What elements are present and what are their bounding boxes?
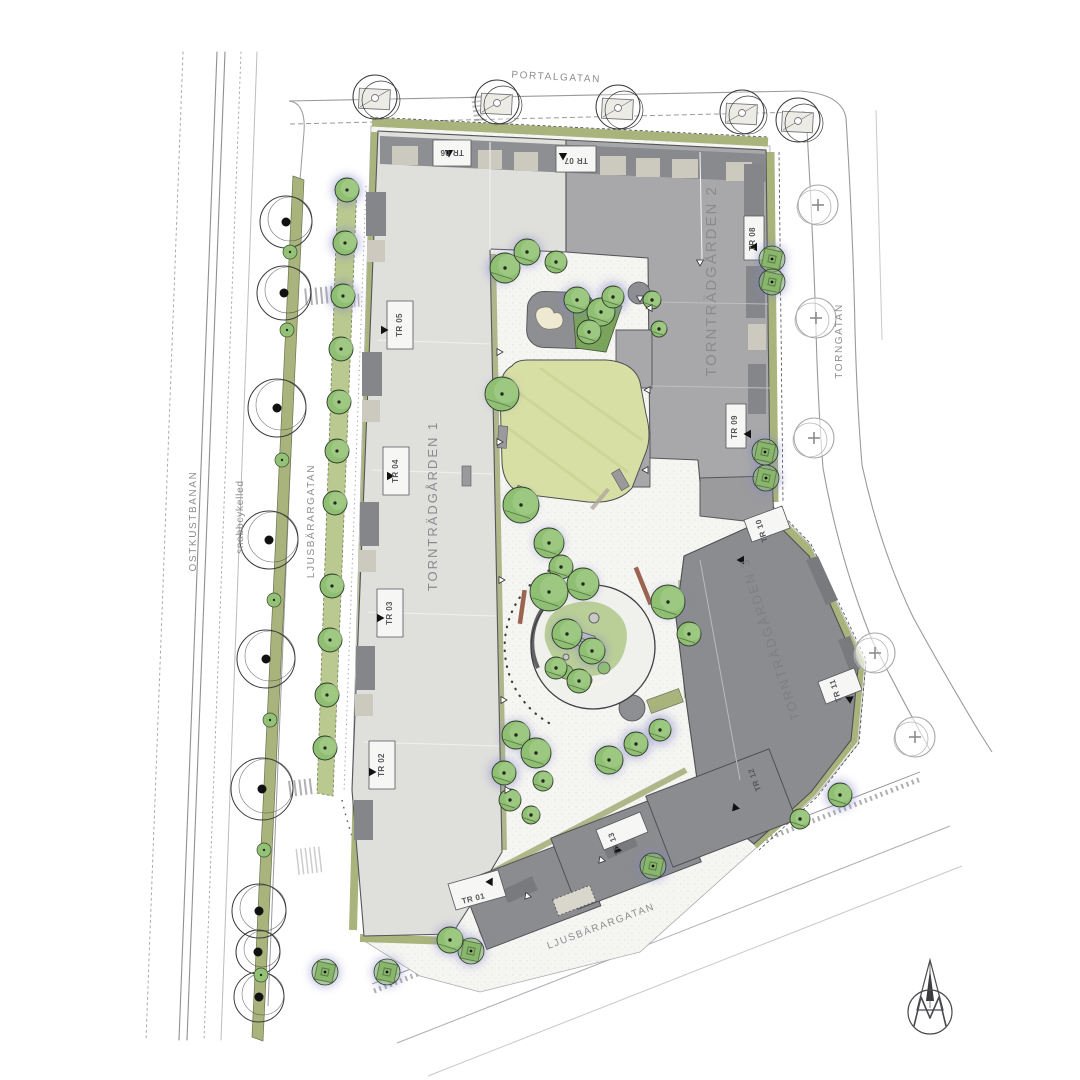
tree-icon <box>624 732 648 756</box>
shrub-icon <box>263 713 277 727</box>
street-tree-icon <box>720 90 767 134</box>
street-tree-plus-icon <box>894 717 935 757</box>
tree-icon <box>437 927 463 953</box>
label-tr04: TR 04 <box>391 459 400 483</box>
site-plan-page: PORTALGATAN TORNGATAN OSTKUSTBANAN snabb… <box>0 0 1080 1080</box>
tree-icon <box>552 619 582 649</box>
median-tree-icon <box>315 683 339 707</box>
street-tree-icon <box>596 85 643 129</box>
label-tr02: TR 02 <box>377 753 386 777</box>
shrub-icon <box>283 245 297 259</box>
existing-tree-icon <box>231 758 293 820</box>
shrub-icon <box>254 968 268 982</box>
street-tree-icon <box>776 98 823 142</box>
existing-tree-icon <box>260 196 312 248</box>
label-tr08: TR 08 <box>748 227 757 251</box>
tree-icon <box>534 528 564 558</box>
tree-icon <box>577 320 601 344</box>
tree-icon <box>499 789 521 811</box>
tree-icon <box>530 573 568 611</box>
label-torngatan: TORNGATAN <box>834 303 845 379</box>
lawn <box>500 360 649 502</box>
shrub-icon <box>280 323 294 337</box>
tree-icon <box>521 738 551 768</box>
planter-tree-icon <box>640 853 666 879</box>
shrub-icon <box>275 453 289 467</box>
tree-icon <box>602 286 624 308</box>
median-tree-icon <box>327 390 351 414</box>
median-tree-icon <box>333 231 357 255</box>
label-tr09: TR 09 <box>730 415 739 439</box>
tree-icon <box>503 487 539 523</box>
tree-icon <box>649 719 671 741</box>
planter-tree-icon <box>312 959 338 985</box>
label-tr06: TR 06 <box>440 148 464 157</box>
tree-icon <box>651 585 685 619</box>
planter-tree-icon <box>374 959 400 985</box>
tree-icon <box>567 669 591 693</box>
tree-icon <box>651 321 667 337</box>
existing-tree-icon <box>237 630 295 688</box>
label-ostkustbanan: OSTKUSTBANAN <box>188 471 199 572</box>
label-building-1: TORNTRÄDGÅRDEN 1 <box>425 421 440 591</box>
existing-tree-icon <box>240 511 298 569</box>
tree-icon <box>579 638 605 664</box>
median-tree-icon <box>318 628 342 652</box>
shrub-icon <box>257 843 271 857</box>
tree-icon <box>564 287 590 313</box>
tree-icon <box>545 657 567 679</box>
shrub-icon <box>267 593 281 607</box>
tree-icon <box>595 746 623 774</box>
label-ljusbarargatan-west: LJUSBÄRARGATAN <box>305 464 317 578</box>
median-tree-icon <box>313 736 337 760</box>
street-tree-plus-icon <box>797 185 838 225</box>
existing-tree-icon <box>248 379 306 437</box>
tree-icon <box>545 251 567 273</box>
label-tr05: TR 05 <box>395 313 404 337</box>
label-portalgatan: PORTALGATAN <box>511 70 601 86</box>
planter-tree-icon <box>759 246 785 272</box>
label-building-2: TORNTRÄDGÅRDEN 2 <box>703 185 720 377</box>
planter-tree-icon <box>759 269 785 295</box>
planter-tree-icon <box>752 439 778 465</box>
median-tree-icon <box>335 178 359 202</box>
median-tree-icon <box>320 574 344 598</box>
planter-tree-icon <box>753 465 779 491</box>
street-tree-plus-icon <box>854 633 895 673</box>
tree-icon <box>790 809 810 829</box>
median-tree-icon <box>325 439 349 463</box>
median-tree-icon <box>323 491 347 515</box>
tree-icon <box>828 783 852 807</box>
street-tree-plus-icon <box>793 418 834 458</box>
tree-icon <box>677 622 701 646</box>
bike-parking-hatch <box>297 859 323 862</box>
street-tree-icon <box>353 75 400 119</box>
north-arrow-icon <box>908 960 952 1034</box>
label-tr07: TR 07 <box>564 156 588 165</box>
street-tree-plus-icon <box>795 298 836 338</box>
tree-icon <box>522 806 540 824</box>
label-snabbcykelled: snabbcykelled <box>235 480 246 554</box>
tree-icon <box>533 771 553 791</box>
tree-icon <box>485 377 519 411</box>
median-tree-icon <box>331 284 355 308</box>
tree-icon <box>514 239 540 265</box>
tree-icon <box>567 568 599 600</box>
site-plan-drawing: PORTALGATAN TORNGATAN OSTKUSTBANAN snabb… <box>0 0 1080 1080</box>
street-tree-icon <box>475 80 522 124</box>
tree-icon <box>492 761 516 785</box>
median-tree-icon <box>329 337 353 361</box>
existing-tree-icon <box>257 266 311 320</box>
label-tr03: TR 03 <box>385 601 394 625</box>
